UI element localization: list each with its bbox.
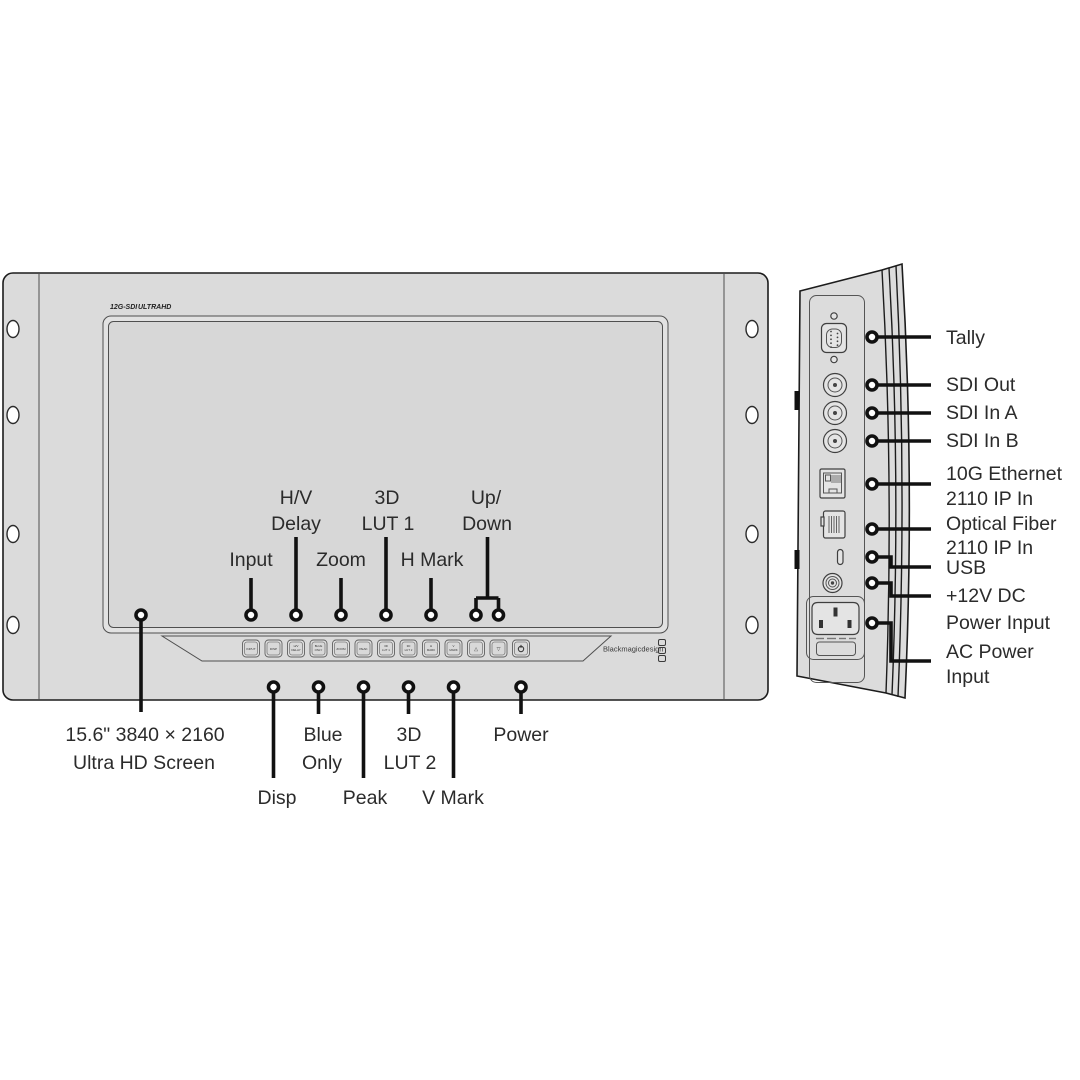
power-button [513, 640, 530, 657]
fiber-label-2: 2110 IP In [946, 537, 1033, 559]
svg-text:MARK: MARK [427, 648, 435, 652]
lut1-label: 3D [375, 487, 400, 509]
updown-label-2: Down [462, 513, 512, 535]
3d-lut1-button: 3D LUT 1 [378, 640, 395, 657]
fiber-label: Optical Fiber [946, 513, 1057, 535]
h-mark-label: H Mark [401, 549, 464, 571]
power-label: Power [493, 724, 549, 746]
zoom-button: ZOOM [333, 640, 350, 657]
monitor-diagram: 12G-SDI ULTRAHD INPUT DISP H/V DELAY [0, 0, 1080, 1080]
ethernet-label: 10G Ethernet [946, 463, 1063, 485]
svg-text:DELAY: DELAY [291, 648, 300, 652]
v-mark-label: V Mark [422, 787, 484, 809]
blue-only-label-2: Only [302, 752, 342, 774]
optical-fiber-port [821, 511, 845, 538]
input-button: INPUT [243, 640, 260, 657]
down-button: ▽ [490, 640, 507, 657]
svg-text:MARK: MARK [449, 648, 457, 652]
updown-label: Up/ [471, 487, 502, 509]
rear-mount-tab-bottom [795, 550, 800, 569]
ac-pin-right [848, 620, 852, 628]
lut2-label-2: LUT 2 [384, 752, 437, 774]
rear-view: Tally SDI Out SDI In A SDI In B 10G Ethe… [795, 264, 1063, 698]
dc-power-label-2: Power Input [946, 612, 1051, 634]
screen-label: 15.6" 3840 × 2160 [65, 724, 224, 746]
tally-label: Tally [946, 327, 985, 349]
usb-port [838, 550, 844, 565]
sdi-in-a-connector [824, 402, 847, 425]
svg-text:INPUT: INPUT [246, 647, 255, 651]
down-triangle-icon: ▽ [497, 647, 501, 653]
hv-delay-label-2: Delay [271, 513, 321, 535]
blue-only-label: Blue [303, 724, 342, 746]
lut2-label: 3D [397, 724, 422, 746]
12g-sdi-logo: 12G-SDI [110, 304, 138, 311]
usb-label: USB [946, 557, 986, 579]
3d-lut2-button: 3D LUT 2 [400, 640, 417, 657]
ac-pin-left [819, 620, 823, 628]
svg-text:PEAK: PEAK [359, 647, 368, 651]
screen-label-2: Ultra HD Screen [73, 752, 215, 774]
peak-label: Peak [343, 787, 388, 809]
svg-text:LUT 2: LUT 2 [405, 648, 413, 652]
up-triangle-icon: △ [474, 647, 478, 653]
disp-button: DISP [265, 640, 282, 657]
lut1-label-2: LUT 1 [362, 513, 415, 535]
dc-power-label: +12V DC [946, 585, 1026, 607]
svg-text:LUT 1: LUT 1 [382, 648, 390, 652]
ac-power-label: AC Power [946, 641, 1034, 663]
sdi-in-a-label: SDI In A [946, 402, 1018, 424]
zoom-label: Zoom [316, 549, 366, 571]
sdi-in-b-label: SDI In B [946, 430, 1019, 452]
sdi-in-b-connector [824, 430, 847, 453]
ultrahd-logo: ULTRAHD [138, 304, 171, 311]
up-button: △ [468, 640, 485, 657]
svg-text:ZOOM: ZOOM [336, 647, 346, 651]
rear-callout-labels: Tally SDI Out SDI In A SDI In B 10G Ethe… [946, 327, 1063, 688]
rear-mount-tab-top [795, 391, 800, 410]
hv-delay-label: H/V [280, 487, 313, 509]
blue-only-button: BLUE ONLY [310, 640, 327, 657]
brand-text: Blackmagicdesign [603, 645, 663, 654]
diagram-canvas: 12G-SDI ULTRAHD INPUT DISP H/V DELAY [0, 0, 1080, 1080]
disp-label: Disp [257, 787, 296, 809]
v-mark-button: V MARK [445, 640, 462, 657]
svg-text:ONLY: ONLY [315, 648, 323, 652]
ac-power-label-2: Input [946, 666, 990, 688]
ethernet-port [820, 469, 845, 498]
svg-text:DISP: DISP [270, 647, 277, 651]
front-view: 12G-SDI ULTRAHD INPUT DISP H/V DELAY [3, 273, 768, 809]
h-mark-button: H MARK [423, 640, 440, 657]
sdi-out-label: SDI Out [946, 374, 1016, 396]
hv-delay-button: H/V DELAY [288, 640, 305, 657]
input-label: Input [229, 549, 273, 571]
ac-pin-center [834, 608, 838, 617]
peak-button: PEAK [355, 640, 372, 657]
ethernet-label-2: 2110 IP In [946, 488, 1033, 510]
dc-power-jack [823, 574, 842, 593]
sdi-out-connector [824, 374, 847, 397]
